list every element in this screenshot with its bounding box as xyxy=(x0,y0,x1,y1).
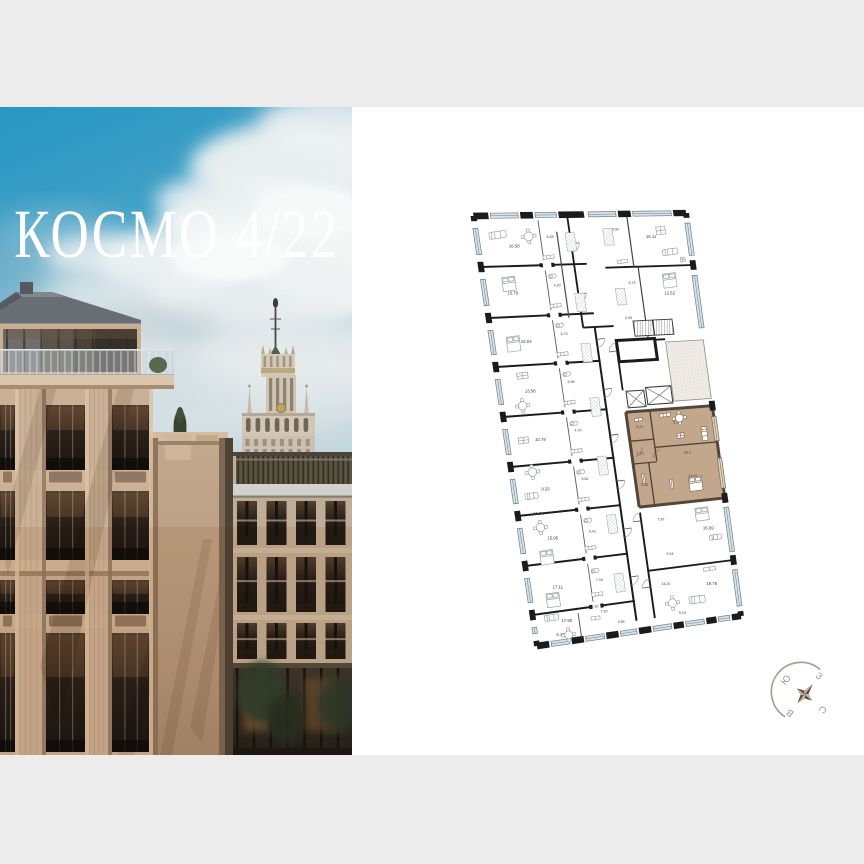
svg-text:5.62: 5.62 xyxy=(582,477,589,481)
svg-text:17.11: 17.11 xyxy=(553,585,564,590)
svg-text:6.49: 6.49 xyxy=(547,235,554,239)
svg-text:16.58: 16.58 xyxy=(509,243,520,248)
svg-text:7.04: 7.04 xyxy=(596,578,603,582)
svg-text:15.95: 15.95 xyxy=(547,535,558,540)
svg-text:9.24: 9.24 xyxy=(679,611,686,615)
svg-text:16.1: 16.1 xyxy=(684,451,691,455)
svg-text:13.58: 13.58 xyxy=(525,388,536,393)
svg-text:7.20: 7.20 xyxy=(601,610,608,614)
svg-text:4.70: 4.70 xyxy=(575,429,582,433)
svg-text:6.41: 6.41 xyxy=(589,530,596,534)
svg-text:17.90: 17.90 xyxy=(561,618,572,623)
svg-text:13.30: 13.30 xyxy=(589,605,598,609)
svg-text:С: С xyxy=(816,703,829,715)
svg-text:16.11: 16.11 xyxy=(646,234,657,239)
svg-text:6.27: 6.27 xyxy=(586,506,593,510)
svg-text:10.79: 10.79 xyxy=(535,437,546,442)
svg-text:9.33: 9.33 xyxy=(541,486,550,491)
svg-text:16.69: 16.69 xyxy=(703,526,714,531)
svg-text:В: В xyxy=(784,706,796,719)
svg-text:16.93: 16.93 xyxy=(521,339,532,344)
svg-text:5.73: 5.73 xyxy=(629,281,636,285)
svg-text:14.20: 14.20 xyxy=(661,582,670,586)
svg-text:9.24: 9.24 xyxy=(667,552,674,556)
svg-text:4.99: 4.99 xyxy=(625,316,632,320)
svg-text:6.73: 6.73 xyxy=(561,332,568,336)
svg-text:11.04: 11.04 xyxy=(533,511,544,516)
svg-text:5.89: 5.89 xyxy=(618,620,625,624)
svg-text:З: З xyxy=(813,670,825,682)
svg-text:Ю: Ю xyxy=(779,673,794,688)
svg-text:5.95: 5.95 xyxy=(568,380,575,384)
svg-text:5.21: 5.21 xyxy=(636,425,643,429)
svg-text:4.20: 4.20 xyxy=(554,284,561,288)
svg-text:19.76: 19.76 xyxy=(706,581,717,586)
svg-text:12.52: 12.52 xyxy=(664,291,675,296)
svg-text:7.87: 7.87 xyxy=(658,518,665,522)
